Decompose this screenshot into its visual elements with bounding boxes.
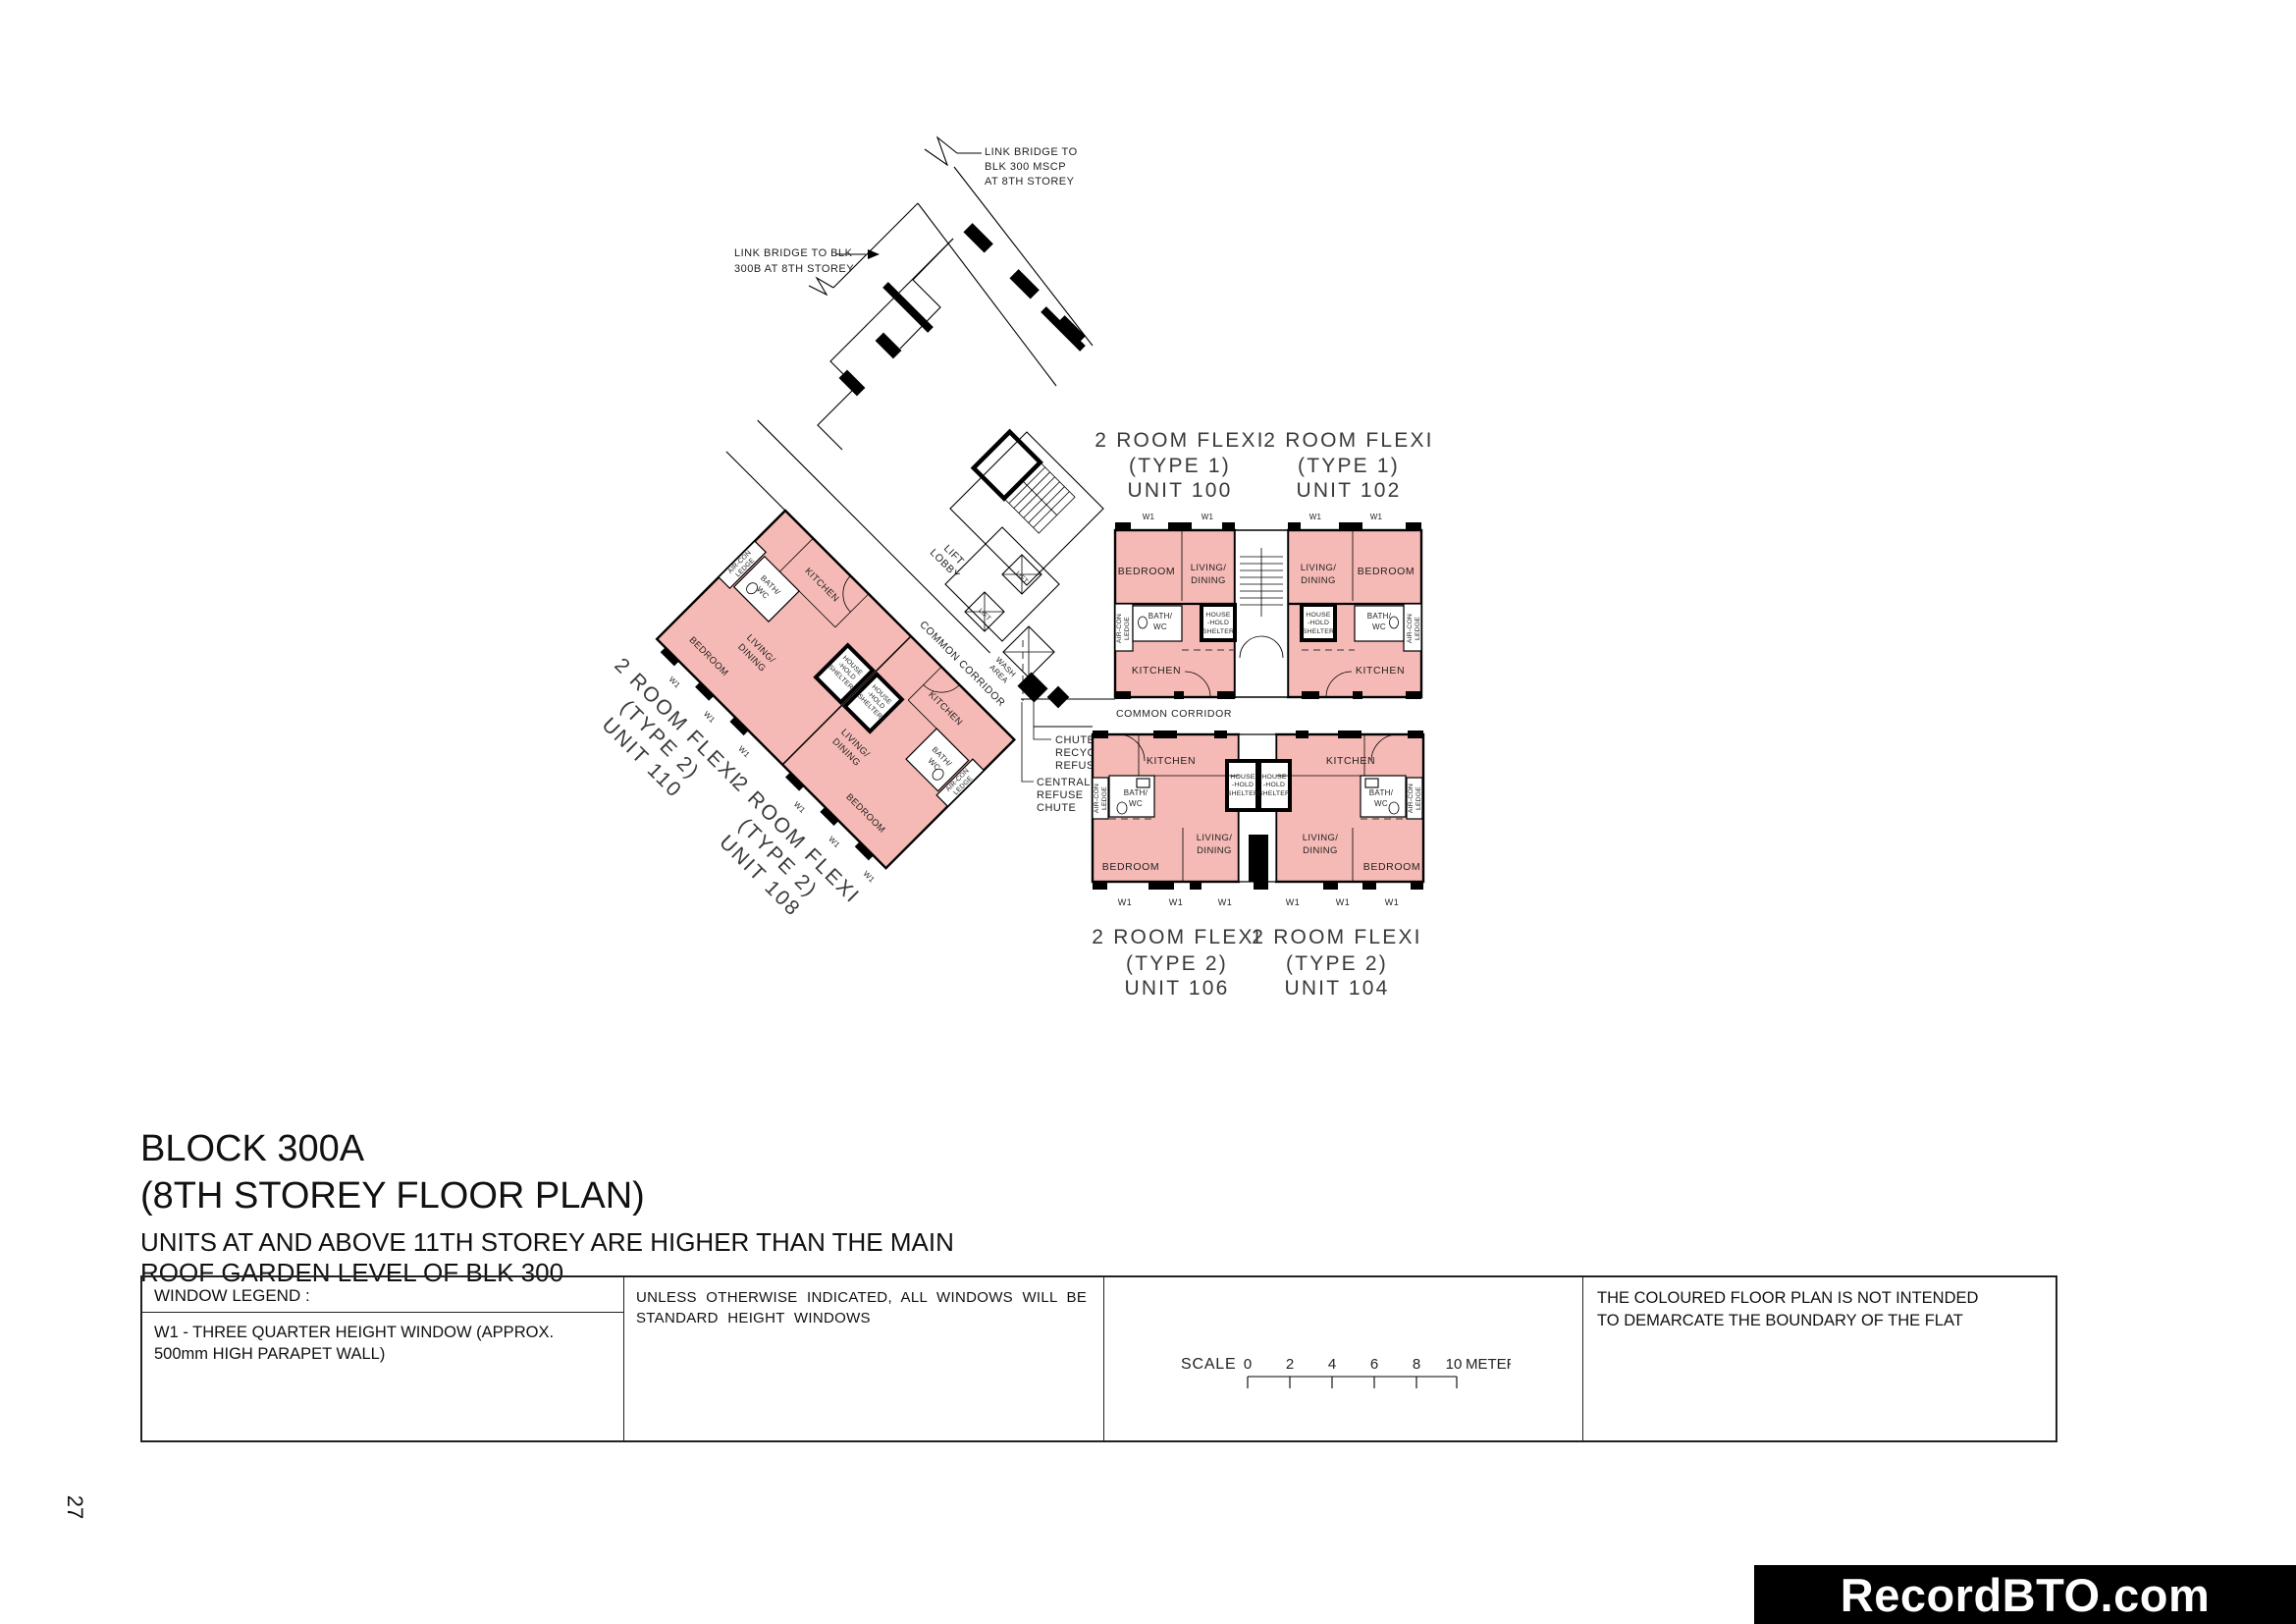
room-label-shelter: SHELTER bbox=[1202, 628, 1234, 635]
room-label-shelter: -HOLD bbox=[1263, 782, 1285, 788]
page-number: 27 bbox=[62, 1495, 87, 1519]
room-label-aircon: AIR-CON bbox=[1116, 614, 1123, 643]
room-label-living: LIVING/ bbox=[1301, 563, 1337, 573]
room-label-shelter: HOUSE bbox=[1230, 774, 1255, 781]
scale-tick: 6 bbox=[1369, 1356, 1377, 1373]
room-label-bath: BATH/ bbox=[1367, 612, 1392, 621]
room-label-shelter: -HOLD bbox=[1308, 620, 1329, 626]
room-label-aircon: LEDGE bbox=[1124, 617, 1131, 640]
room-label-living: DINING bbox=[1303, 845, 1338, 856]
w1-label: W1 bbox=[1370, 513, 1383, 521]
lift-icon: LIFT bbox=[965, 592, 1004, 631]
w1-label: W1 bbox=[862, 869, 877, 884]
room-label-bedroom: BEDROOM bbox=[1118, 566, 1175, 577]
scale-bar: SCALE 0 2 4 6 8 10 METER bbox=[1177, 1327, 1511, 1390]
room-label-shelter: HOUSE bbox=[1205, 612, 1230, 619]
room-label-aircon: AIR-CON bbox=[1407, 614, 1414, 643]
room-label-bath: WC bbox=[1153, 623, 1167, 631]
room-label-bath: WC bbox=[1374, 799, 1388, 808]
room-label-bath: WC bbox=[1372, 623, 1386, 631]
room-label-living: LIVING/ bbox=[1303, 833, 1339, 843]
room-label-bath: BATH/ bbox=[1369, 788, 1394, 797]
room-label-bath: BATH/ bbox=[1148, 612, 1173, 621]
page-subtitle: (8TH STOREY FLOOR PLAN) bbox=[140, 1172, 954, 1219]
room-label-aircon: LEDGE bbox=[1415, 786, 1422, 810]
room-label-bedroom: BEDROOM bbox=[1102, 861, 1159, 873]
common-corridor-label: COMMON CORRIDOR bbox=[1116, 708, 1232, 720]
link-bridge-300b: LINK BRIDGE TO BLK 300B AT 8TH STOREY bbox=[734, 203, 953, 450]
svg-text:2 ROOM FLEXI: 2 ROOM FLEXI bbox=[1263, 429, 1433, 452]
unit-label-106: 2 ROOM FLEXI (TYPE 2) UNIT 106 bbox=[1092, 926, 1261, 1000]
svg-text:2 ROOM FLEXI: 2 ROOM FLEXI bbox=[1252, 926, 1421, 948]
room-label-shelter: HOUSE bbox=[1306, 612, 1330, 619]
unit-label-100: 2 ROOM FLEXI (TYPE 1) UNIT 100 bbox=[1095, 429, 1264, 502]
room-label-bath: BATH/ bbox=[1124, 788, 1148, 797]
svg-text:(TYPE 1): (TYPE 1) bbox=[1129, 455, 1231, 477]
window-legend-item: W1 - THREE QUARTER HEIGHT WINDOW (APPROX… bbox=[142, 1313, 623, 1374]
room-label-aircon: LEDGE bbox=[1415, 617, 1421, 640]
room-label-kitchen: KITCHEN bbox=[1326, 755, 1375, 767]
room-label-kitchen: KITCHEN bbox=[1356, 665, 1405, 677]
scale-tick: 2 bbox=[1285, 1356, 1293, 1373]
centralised-chute-label: CHUTE bbox=[1037, 802, 1076, 814]
legend-window-cell: WINDOW LEGEND : W1 - THREE QUARTER HEIGH… bbox=[142, 1277, 623, 1440]
centralised-chute-label: REFUSE bbox=[1037, 789, 1084, 801]
room-label-kitchen: KITCHEN bbox=[1132, 665, 1181, 677]
legend-windows-note-cell: UNLESS OTHERWISE INDICATED, ALL WINDOWS … bbox=[623, 1277, 1103, 1440]
title-note-line1: UNITS AT AND ABOVE 11TH STOREY ARE HIGHE… bbox=[140, 1227, 954, 1258]
room-label-living: DINING bbox=[1191, 575, 1226, 586]
link-bridge-mscp: LINK BRIDGE TO BLK 300 MSCP AT 8TH STORE… bbox=[918, 137, 1093, 386]
svg-text:UNIT 104: UNIT 104 bbox=[1284, 977, 1389, 1000]
coloured-note-line1: THE COLOURED FLOOR PLAN IS NOT INTENDED bbox=[1597, 1287, 2042, 1310]
room-label-aircon: AIR-CON bbox=[1094, 784, 1100, 813]
w1-label: W1 bbox=[667, 675, 682, 689]
w1-label: W1 bbox=[1385, 897, 1400, 907]
lift-lobby-label: LIFT LOBBY bbox=[928, 538, 972, 582]
w1-label: W1 bbox=[792, 800, 807, 815]
scale-tick: 4 bbox=[1327, 1356, 1335, 1373]
scale-unit: METER bbox=[1466, 1356, 1511, 1373]
w1-label: W1 bbox=[1201, 513, 1214, 521]
room-label-kitchen: KITCHEN bbox=[1147, 755, 1196, 767]
legend-table: WINDOW LEGEND : W1 - THREE QUARTER HEIGH… bbox=[140, 1275, 2057, 1442]
room-label-bedroom: BEDROOM bbox=[1358, 566, 1415, 577]
w1-label: W1 bbox=[702, 710, 717, 725]
legend-scale-cell: SCALE 0 2 4 6 8 10 METER bbox=[1103, 1277, 1582, 1440]
mscp-label: AT 8TH STOREY bbox=[985, 176, 1075, 188]
staircase-upper bbox=[1235, 530, 1288, 697]
window-legend-title: WINDOW LEGEND : bbox=[142, 1277, 623, 1313]
upper-cluster: W1 W1 W1 W1 BEDROOM LIVING/ DINING AIR-C… bbox=[1095, 429, 1433, 699]
scale-tick: 0 bbox=[1243, 1356, 1251, 1373]
room-label-shelter: SHELTER bbox=[1303, 628, 1334, 635]
refuse-chute-shaft bbox=[1017, 672, 1047, 702]
w1-label: W1 bbox=[827, 835, 841, 849]
svg-text:2 ROOM FLEXI: 2 ROOM FLEXI bbox=[1095, 429, 1264, 452]
room-label-aircon: LEDGE bbox=[1101, 786, 1108, 810]
w1-label: W1 bbox=[1169, 897, 1184, 907]
room-label-shelter: SHELTER bbox=[1227, 790, 1258, 797]
svg-text:(TYPE 2): (TYPE 2) bbox=[1126, 952, 1228, 975]
bridge-300b-label: LINK BRIDGE TO BLK bbox=[734, 247, 853, 259]
w1-label: W1 bbox=[1118, 897, 1133, 907]
watermark-banner: RecordBTO.com bbox=[1754, 1565, 2296, 1624]
left-wing: KITCHEN BATH/ WC AIR-CON LEDGE HOUSE -HO… bbox=[523, 420, 1047, 945]
scale-label: SCALE bbox=[1181, 1356, 1236, 1373]
mscp-label: BLK 300 MSCP bbox=[985, 161, 1066, 173]
room-label-shelter: -HOLD bbox=[1232, 782, 1254, 788]
room-label-bedroom: BEDROOM bbox=[1363, 861, 1420, 873]
w1-label: W1 bbox=[1336, 897, 1351, 907]
w1-label: W1 bbox=[1286, 897, 1301, 907]
lower-cluster: KITCHEN KITCHEN AIR-CON LEDGE BATH/ WC H… bbox=[1092, 731, 1423, 1000]
unit-label-102: 2 ROOM FLEXI (TYPE 1) UNIT 102 bbox=[1263, 429, 1433, 502]
legend-coloured-note-cell: THE COLOURED FLOOR PLAN IS NOT INTENDED … bbox=[1582, 1277, 2056, 1440]
svg-text:UNIT 106: UNIT 106 bbox=[1124, 977, 1229, 1000]
room-label-living: LIVING/ bbox=[1197, 833, 1233, 843]
w1-label: W1 bbox=[1309, 513, 1322, 521]
refuse-chute-shaft bbox=[1047, 686, 1070, 709]
room-label-aircon: AIR-CON bbox=[1408, 784, 1415, 813]
room-label-shelter: HOUSE bbox=[1261, 774, 1286, 781]
svg-text:(TYPE 2): (TYPE 2) bbox=[1286, 952, 1388, 975]
w1-label: W1 bbox=[1218, 897, 1233, 907]
mscp-label: LINK BRIDGE TO bbox=[985, 146, 1078, 158]
windows-note-line1: UNLESS OTHERWISE INDICATED, ALL WINDOWS … bbox=[636, 1287, 1092, 1308]
coloured-note-line2: TO DEMARCATE THE BOUNDARY OF THE FLAT bbox=[1597, 1310, 2042, 1332]
svg-text:UNIT 102: UNIT 102 bbox=[1296, 479, 1401, 502]
scale-tick: 8 bbox=[1412, 1356, 1419, 1373]
refuse-chute-shaft bbox=[1249, 835, 1268, 882]
title-block: BLOCK 300A (8TH STOREY FLOOR PLAN) UNITS… bbox=[140, 1125, 954, 1288]
room-label-living: LIVING/ bbox=[1191, 563, 1227, 573]
room-label-shelter: -HOLD bbox=[1207, 620, 1229, 626]
w1-label: W1 bbox=[736, 744, 751, 759]
room-label-living: DINING bbox=[1197, 845, 1232, 856]
staircase-lobby bbox=[974, 432, 1075, 533]
page-title: BLOCK 300A bbox=[140, 1125, 954, 1172]
room-label-shelter: SHELTER bbox=[1258, 790, 1290, 797]
unit-label-104: 2 ROOM FLEXI (TYPE 2) UNIT 104 bbox=[1252, 926, 1421, 1000]
svg-text:(TYPE 1): (TYPE 1) bbox=[1298, 455, 1400, 477]
svg-text:2 ROOM FLEXI: 2 ROOM FLEXI bbox=[1092, 926, 1261, 948]
bridge-300b-label: 300B AT 8TH STOREY bbox=[734, 263, 854, 275]
svg-text:UNIT 100: UNIT 100 bbox=[1127, 479, 1232, 502]
scale-tick: 10 bbox=[1445, 1356, 1462, 1373]
room-label-bath: WC bbox=[1129, 799, 1143, 808]
w1-label: W1 bbox=[1143, 513, 1155, 521]
watermark-text: RecordBTO.com bbox=[1841, 1568, 2211, 1622]
windows-note-line2: STANDARD HEIGHT WINDOWS bbox=[636, 1308, 1092, 1328]
room-label-living: DINING bbox=[1301, 575, 1336, 586]
